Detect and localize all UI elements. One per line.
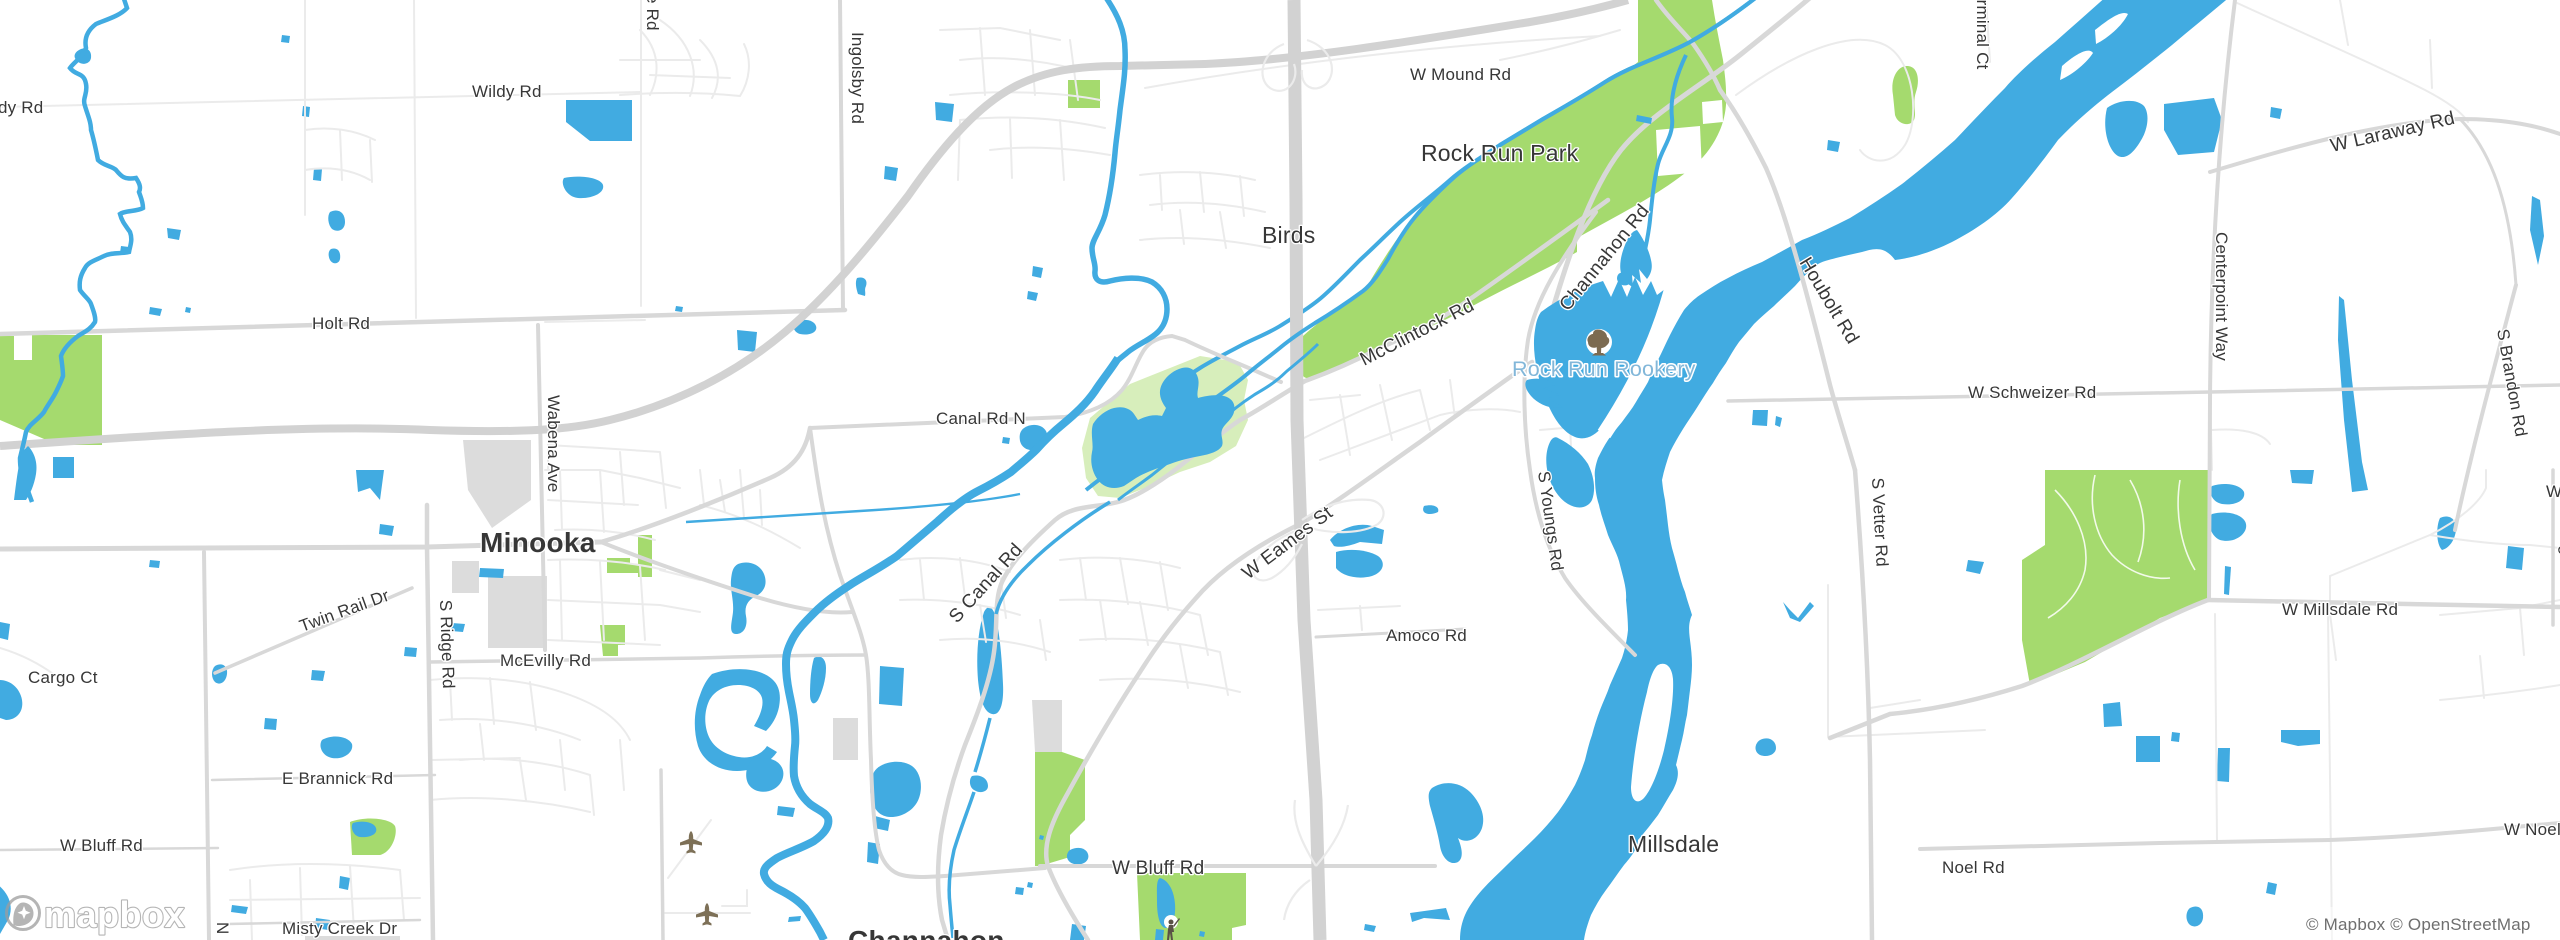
svg-text:© Mapbox © OpenStreetMap: © Mapbox © OpenStreetMap: [2306, 915, 2531, 934]
svg-text:Minooka: Minooka: [480, 527, 596, 558]
svg-text:Birds: Birds: [1262, 222, 1315, 248]
svg-text:W Schweizer Rd: W Schweizer Rd: [1968, 383, 2096, 402]
svg-text:Cargo Ct: Cargo Ct: [28, 668, 98, 687]
svg-text:S Ridge Rd: S Ridge Rd: [436, 599, 458, 689]
svg-text:W: W: [2546, 482, 2560, 501]
svg-text:Wabena Ave: Wabena Ave: [544, 395, 563, 492]
svg-text:E Brannick Rd: E Brannick Rd: [282, 769, 393, 788]
svg-text:dy Rd: dy Rd: [0, 98, 43, 117]
svg-text:Misty Creek Dr: Misty Creek Dr: [282, 919, 397, 938]
svg-text:N: N: [213, 922, 232, 934]
svg-text:Rock Run Rookery: Rock Run Rookery: [1512, 357, 1696, 381]
svg-text:Millsdale: Millsdale: [1628, 831, 1719, 857]
svg-text:McEvilly Rd: McEvilly Rd: [500, 651, 591, 670]
svg-text:e Rd: e Rd: [643, 0, 662, 31]
svg-text:Rock Run Park: Rock Run Park: [1421, 140, 1579, 166]
svg-text:W Millsdale Rd: W Millsdale Rd: [2282, 600, 2398, 619]
svg-text:W Bluff Rd: W Bluff Rd: [1112, 858, 1204, 879]
svg-text:Canal Rd N: Canal Rd N: [936, 409, 1026, 428]
svg-text:mapbox: mapbox: [44, 894, 185, 935]
svg-text:Channahon: Channahon: [848, 925, 1005, 940]
svg-text:Noel Rd: Noel Rd: [1942, 858, 2005, 877]
svg-text:Amoco Rd: Amoco Rd: [1386, 626, 1467, 645]
svg-text:Ingolsby Rd: Ingolsby Rd: [848, 32, 867, 124]
svg-text:Holt Rd: Holt Rd: [312, 314, 370, 333]
svg-text:Centerpoint Way: Centerpoint Way: [2212, 232, 2231, 361]
svg-text:W Mound Rd: W Mound Rd: [1410, 65, 1511, 84]
svg-text:erminal Ct: erminal Ct: [1973, 0, 1992, 70]
svg-text:Wildy Rd: Wildy Rd: [472, 82, 542, 101]
svg-text:W Noel Rd: W Noel Rd: [2504, 820, 2560, 839]
svg-text:W Bluff Rd: W Bluff Rd: [60, 836, 143, 855]
